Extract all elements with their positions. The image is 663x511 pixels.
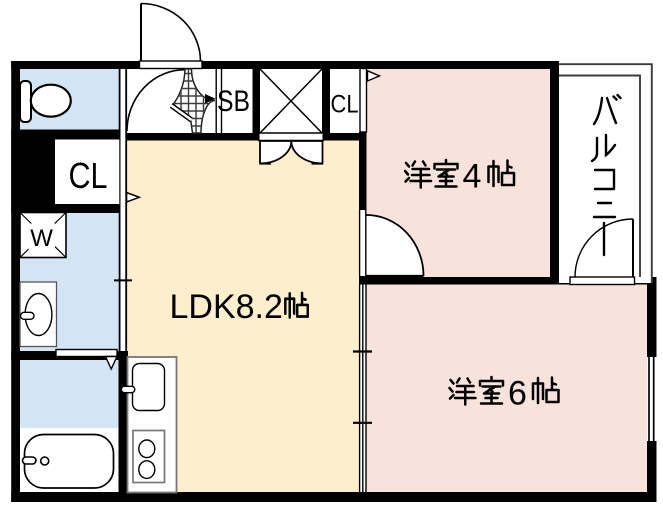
svg-text:LDK8.2: LDK8.2 [170, 288, 283, 326]
svg-text:CL: CL [331, 91, 359, 119]
svg-text:CL: CL [69, 155, 108, 196]
svg-text:SB: SB [217, 85, 250, 118]
svg-text:W: W [30, 225, 53, 252]
svg-text:6: 6 [508, 375, 527, 413]
svg-text:4: 4 [463, 158, 482, 196]
